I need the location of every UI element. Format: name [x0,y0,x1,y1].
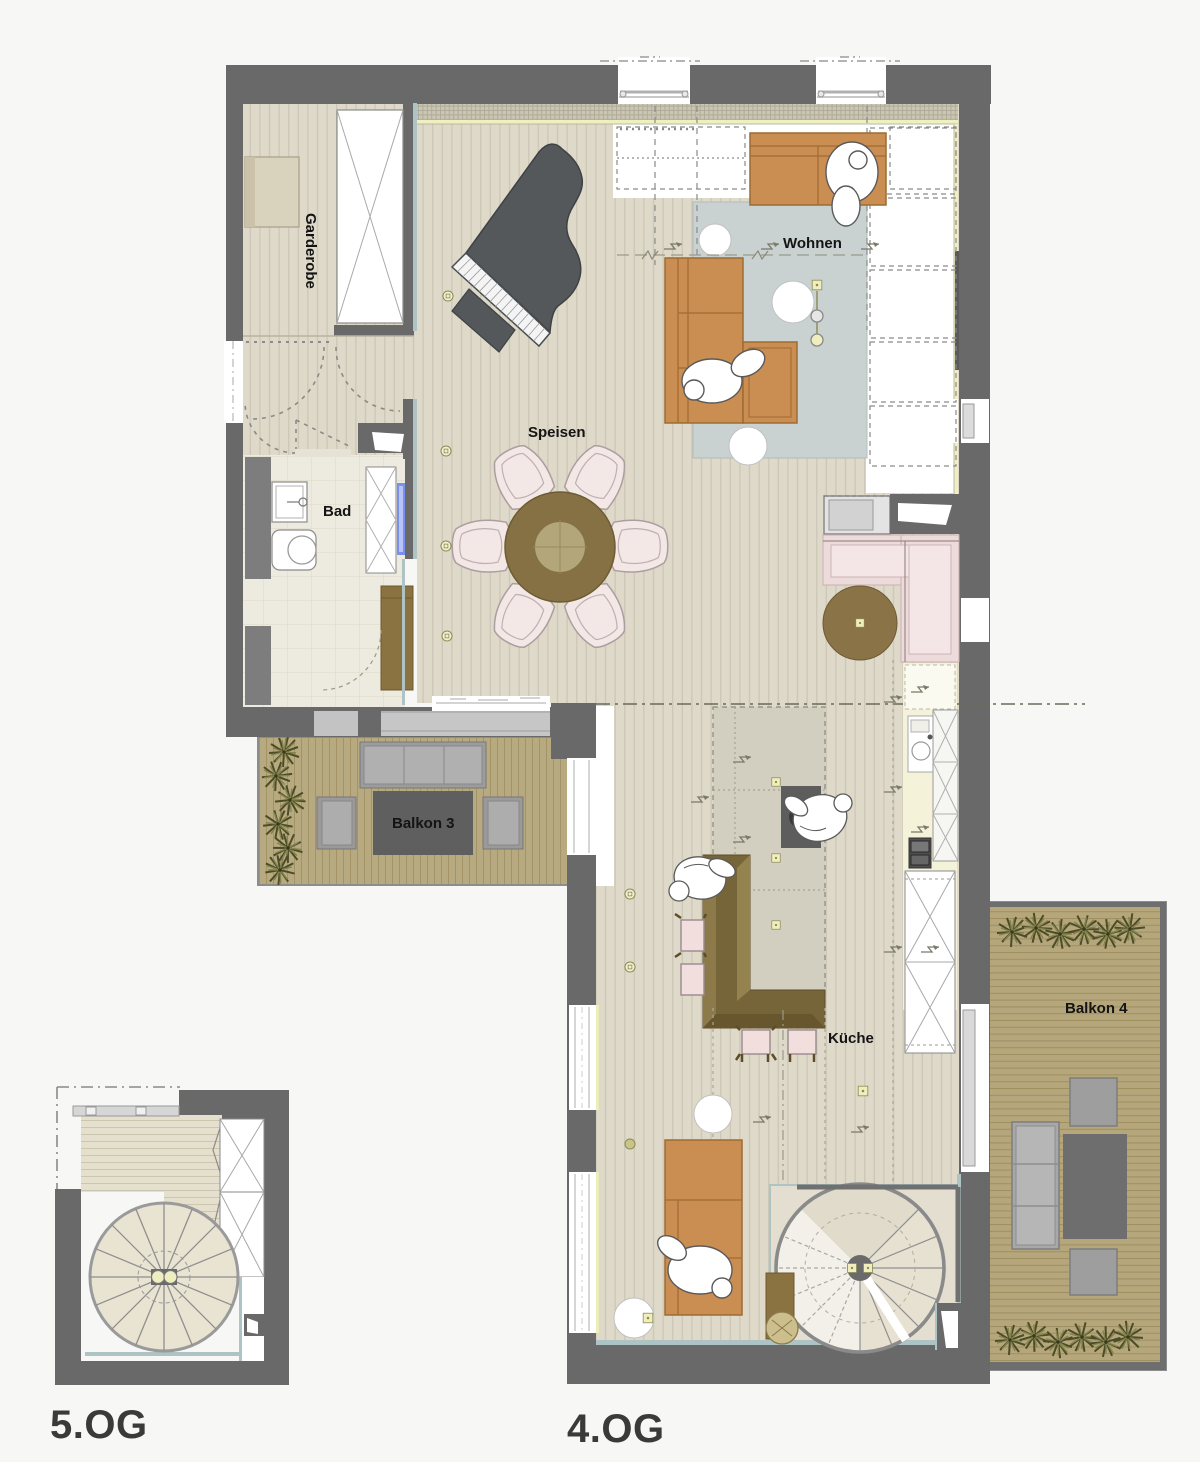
svg-text:4.OG: 4.OG [567,1407,665,1451]
svg-text:Küche: Küche [828,1030,874,1047]
svg-text:Wohnen: Wohnen [783,235,842,252]
svg-text:Balkon 3: Balkon 3 [392,815,455,832]
svg-text:Balkon 4: Balkon 4 [1065,1000,1128,1017]
svg-text:Garderobe: Garderobe [302,213,319,289]
svg-text:Bad: Bad [323,503,351,520]
svg-text:Speisen: Speisen [528,424,586,441]
svg-text:5.OG: 5.OG [50,1403,148,1447]
